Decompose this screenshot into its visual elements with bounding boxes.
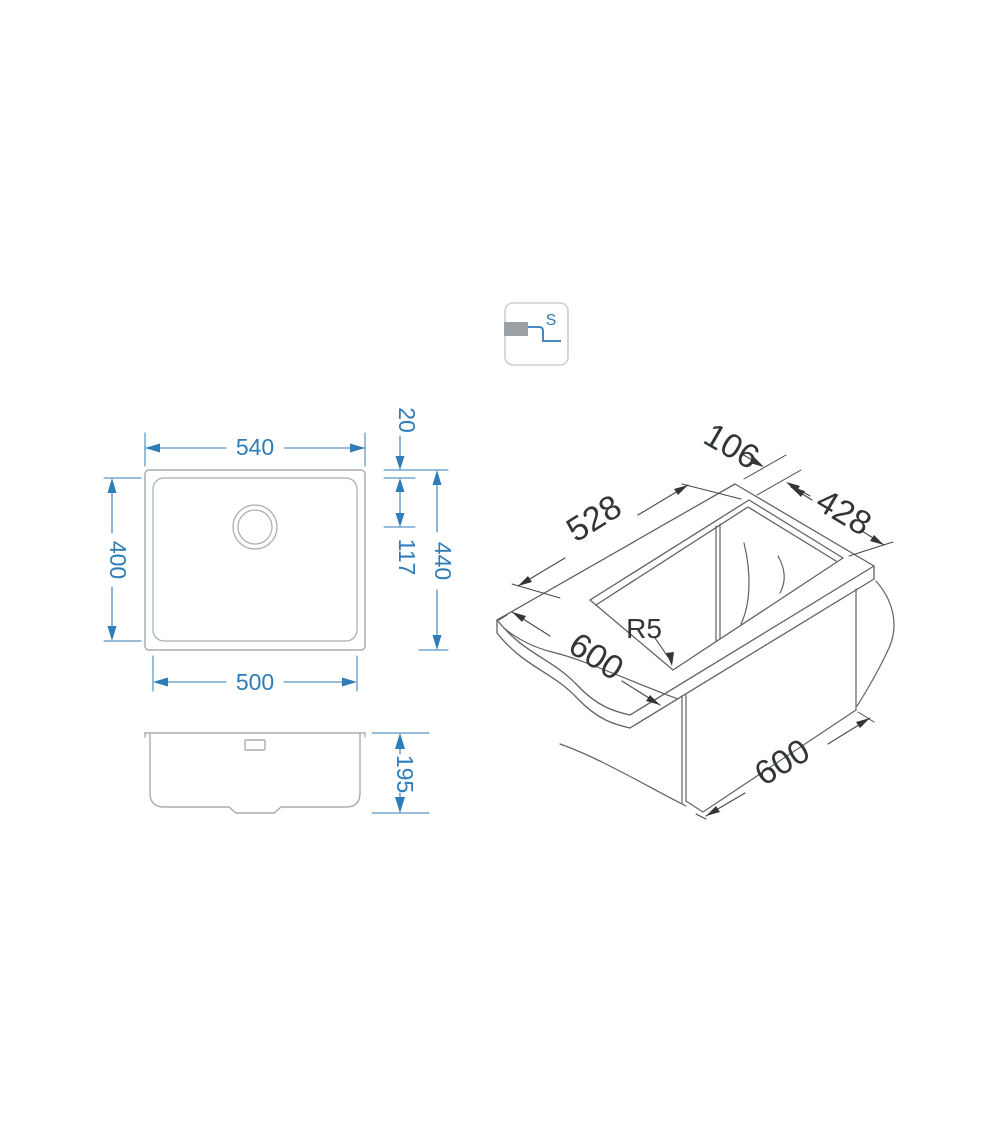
technical-drawing-page: S: [0, 0, 1000, 1125]
cabinet-left-break-wave-3: [560, 744, 686, 806]
dim-worktop-depth: 600: [562, 625, 630, 688]
plan-dimension-lines: [112, 436, 437, 682]
cabinet-outline: [504, 524, 894, 812]
isometric-view: 528 106 428 600 600 R5: [497, 416, 894, 819]
dim-width-top: 540: [236, 434, 274, 460]
counter-block-icon: [504, 322, 528, 336]
drawing-canvas: S: [0, 0, 1000, 1125]
dim-back-edge-offset: 106: [697, 416, 765, 477]
cabinet-back-break-wave-1: [741, 543, 749, 624]
dim-bowl-height: 400: [105, 541, 131, 579]
dim-total-height: 440: [430, 542, 456, 580]
dim-corner-radius: R5: [626, 613, 662, 644]
mounting-type-icon: S: [504, 303, 568, 365]
worktop-front-edge: [630, 566, 874, 715]
cabinet-back-break-wave-2: [778, 556, 784, 593]
sink-body-section: [150, 734, 360, 813]
undermount-profile-icon: [528, 327, 561, 341]
plan-view: 540 500 400 20 117 440: [104, 407, 456, 695]
dim-cabinet-width: 600: [748, 732, 816, 794]
sink-outer-edge: [145, 470, 365, 650]
cabinet-right-break-wave: [857, 581, 894, 706]
drain-inner-circle: [238, 510, 272, 544]
drain-outer-circle: [233, 505, 277, 549]
dim-bowl-width: 500: [236, 669, 274, 695]
dim-cutout-length: 528: [560, 488, 628, 550]
sink-bowl-edge: [153, 478, 357, 641]
worktop-outline: [497, 484, 874, 728]
section-view: 195: [145, 733, 429, 813]
dim-drain-offset: 117: [394, 539, 420, 576]
dim-rim-offset: 20: [394, 407, 420, 433]
section-outline: [145, 733, 365, 813]
dim-depth: 195: [392, 755, 418, 793]
overflow-slot: [245, 740, 265, 750]
icon-letter: S: [546, 312, 557, 329]
